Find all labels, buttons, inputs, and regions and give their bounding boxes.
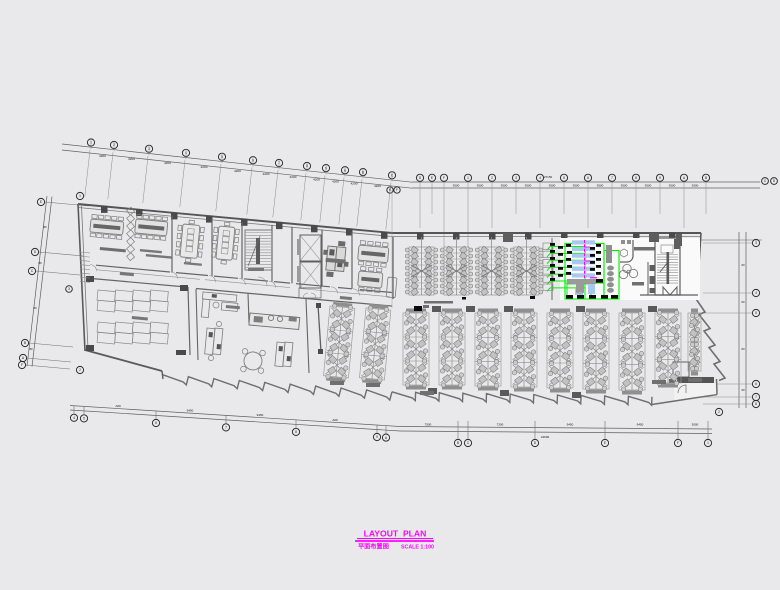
svg-text:7500: 7500	[425, 423, 432, 427]
svg-text:SCALE 1:100: SCALE 1:100	[401, 545, 434, 551]
svg-text:3000: 3000	[477, 184, 484, 188]
svg-text:B: B	[457, 441, 459, 445]
svg-text:9450: 9450	[637, 423, 644, 427]
svg-text:5: 5	[755, 311, 757, 315]
svg-text:3: 3	[755, 241, 757, 245]
svg-text:4200: 4200	[351, 182, 358, 186]
svg-text:4200: 4200	[313, 177, 320, 181]
svg-text:3000: 3000	[692, 423, 699, 427]
svg-text:3000: 3000	[501, 184, 508, 188]
svg-text:3: 3	[68, 287, 70, 291]
svg-text:3000: 3000	[645, 184, 652, 188]
svg-text:60: 60	[741, 347, 745, 351]
svg-text:E: E	[389, 188, 391, 192]
svg-text:80: 80	[33, 306, 37, 310]
svg-text:2: 2	[491, 176, 493, 180]
svg-text:5: 5	[83, 417, 85, 421]
svg-text:3: 3	[515, 176, 517, 180]
svg-text:3000: 3000	[453, 184, 460, 188]
svg-text:平面布置图: 平面布置图	[358, 543, 389, 551]
svg-text:E: E	[604, 441, 606, 445]
svg-text:9450: 9450	[257, 413, 264, 417]
svg-text:B: B	[24, 341, 26, 345]
svg-text:F: F	[21, 363, 23, 367]
svg-text:80: 80	[38, 261, 42, 265]
svg-text:4200: 4200	[332, 180, 339, 184]
svg-text:7: 7	[755, 395, 757, 399]
svg-text:F: F	[677, 441, 679, 445]
svg-text:3000: 3000	[573, 184, 580, 188]
svg-text:1: 1	[467, 176, 469, 180]
svg-text:9450: 9450	[567, 423, 574, 427]
svg-text:7200: 7200	[497, 423, 504, 427]
svg-text:80: 80	[43, 225, 47, 229]
svg-text:4200: 4200	[99, 154, 106, 158]
svg-text:4200: 4200	[234, 169, 241, 173]
svg-text:3000: 3000	[692, 184, 699, 188]
svg-text:3000: 3000	[525, 184, 532, 188]
svg-text:6: 6	[155, 421, 157, 425]
svg-text:60: 60	[741, 388, 745, 392]
svg-text:3000: 3000	[669, 184, 676, 188]
svg-text:A09: A09	[332, 418, 338, 422]
svg-text:24600: 24600	[541, 435, 550, 439]
svg-text:60: 60	[741, 300, 745, 304]
svg-text:E: E	[431, 176, 433, 180]
svg-text:9: 9	[659, 176, 661, 180]
svg-text:7: 7	[611, 176, 613, 180]
svg-text:27150: 27150	[544, 175, 553, 179]
svg-text:6: 6	[587, 176, 589, 180]
svg-text:LAYOUT PLAN: LAYOUT PLAN	[364, 529, 427, 539]
svg-text:2: 2	[79, 368, 81, 372]
svg-text:4: 4	[539, 176, 541, 180]
svg-text:3000: 3000	[549, 184, 556, 188]
svg-text:3000: 3000	[597, 184, 604, 188]
svg-text:1: 1	[79, 194, 81, 198]
svg-text:4200: 4200	[290, 175, 297, 179]
svg-text:A09: A09	[115, 404, 121, 408]
svg-text:4200: 4200	[263, 172, 270, 176]
svg-text:4200: 4200	[201, 165, 208, 169]
svg-text:4: 4	[73, 416, 75, 420]
svg-text:F: F	[396, 188, 398, 192]
svg-text:8: 8	[635, 176, 637, 180]
svg-text:4200: 4200	[164, 161, 171, 165]
svg-text:60: 60	[741, 263, 745, 267]
svg-text:80: 80	[29, 347, 33, 351]
svg-text:4200: 4200	[374, 184, 381, 188]
svg-text:8: 8	[295, 430, 297, 434]
svg-text:3000: 3000	[621, 184, 628, 188]
svg-text:4: 4	[755, 291, 757, 295]
svg-text:E: E	[40, 200, 42, 204]
svg-text:9450: 9450	[187, 409, 194, 413]
svg-text:9: 9	[376, 435, 378, 439]
svg-text:6: 6	[755, 382, 757, 386]
svg-text:8: 8	[755, 402, 757, 406]
svg-text:4200: 4200	[128, 157, 135, 161]
svg-text:1: 1	[707, 441, 709, 445]
svg-text:B: B	[705, 176, 707, 180]
svg-text:2: 2	[718, 410, 720, 414]
svg-text:7: 7	[225, 426, 227, 430]
svg-text:F: F	[443, 176, 445, 180]
svg-text:5: 5	[563, 176, 565, 180]
